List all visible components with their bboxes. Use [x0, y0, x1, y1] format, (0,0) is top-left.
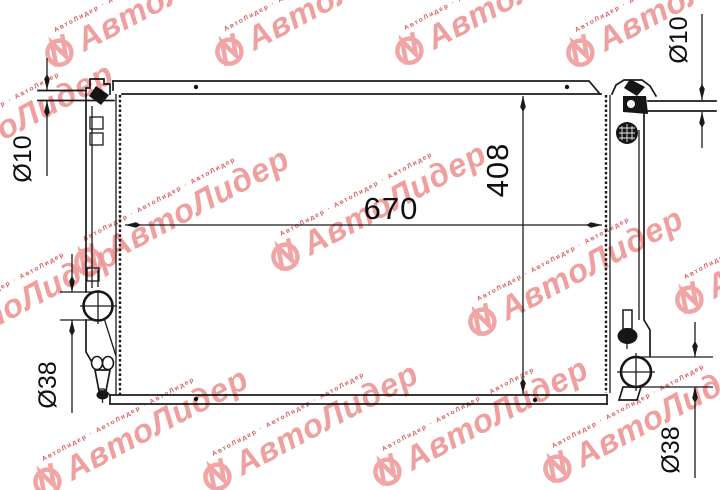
- dim-pipe-d10-right: Ø10: [665, 14, 705, 148]
- dim-d10-right-label: Ø10: [665, 16, 693, 63]
- top-band-rivet: [565, 85, 569, 89]
- right-tank: [612, 79, 656, 400]
- radiator-diagram: 670 408 Ø10 Ø10 Ø38: [0, 0, 720, 490]
- top-right-pipe-elbow: [623, 96, 648, 114]
- radiator-drawing-page: 670 408 Ø10 Ø10 Ø38: [0, 0, 720, 490]
- top-tank-band: [113, 81, 601, 94]
- left-mount-pin: [89, 86, 109, 105]
- dim-d38-right-label: Ø38: [657, 426, 685, 473]
- top-right-pipe: [648, 101, 716, 111]
- dim-pipe-d38-right: Ø38: [640, 322, 713, 478]
- right-drain-plug: [618, 310, 638, 349]
- bottom-band-rivet: [194, 397, 198, 401]
- radiator-core-edges: [116, 94, 610, 395]
- right-tank-foot: [619, 387, 641, 400]
- bottom-band-rivet: [533, 398, 537, 402]
- top-band-rivet: [194, 85, 198, 89]
- dim-height-label: 408: [480, 143, 515, 198]
- dim-width-670: 670: [125, 191, 602, 228]
- dim-pipe-d10-left: Ø10: [9, 58, 50, 183]
- right-mount-pin: [624, 79, 645, 96]
- filler-neck: [616, 122, 638, 144]
- dim-d10-left-label: Ø10: [9, 135, 37, 182]
- dim-height-408: 408: [480, 96, 526, 394]
- left-tank: [80, 79, 117, 403]
- bottom-tank-band: [99, 389, 607, 404]
- dim-d38-left-label: Ø38: [34, 361, 62, 408]
- left-pipe-boss: [87, 268, 99, 281]
- dim-width-label: 670: [364, 191, 419, 226]
